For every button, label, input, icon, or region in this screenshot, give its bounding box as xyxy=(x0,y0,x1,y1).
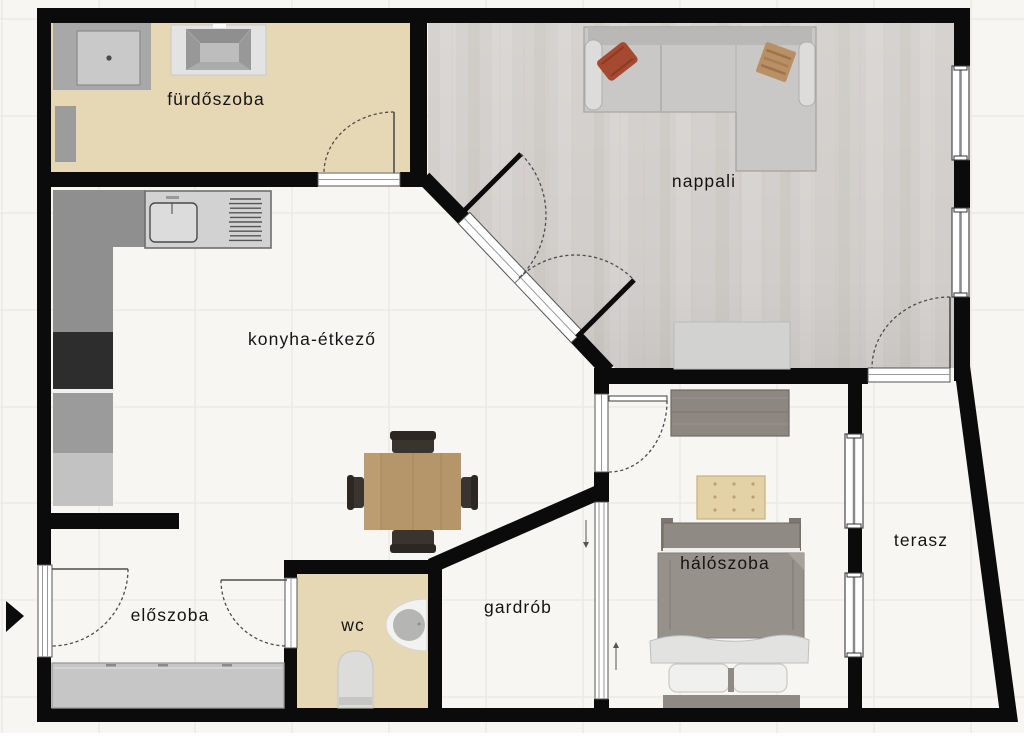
svg-text:gardrób: gardrób xyxy=(484,597,552,617)
svg-text:nappali: nappali xyxy=(672,171,736,191)
svg-text:konyha-étkező: konyha-étkező xyxy=(248,329,376,349)
svg-text:wc: wc xyxy=(340,615,365,635)
svg-text:fürdőszoba: fürdőszoba xyxy=(167,89,265,109)
svg-text:terasz: terasz xyxy=(894,530,948,550)
svg-text:előszoba: előszoba xyxy=(131,605,210,625)
svg-text:hálószoba: hálószoba xyxy=(680,553,770,573)
